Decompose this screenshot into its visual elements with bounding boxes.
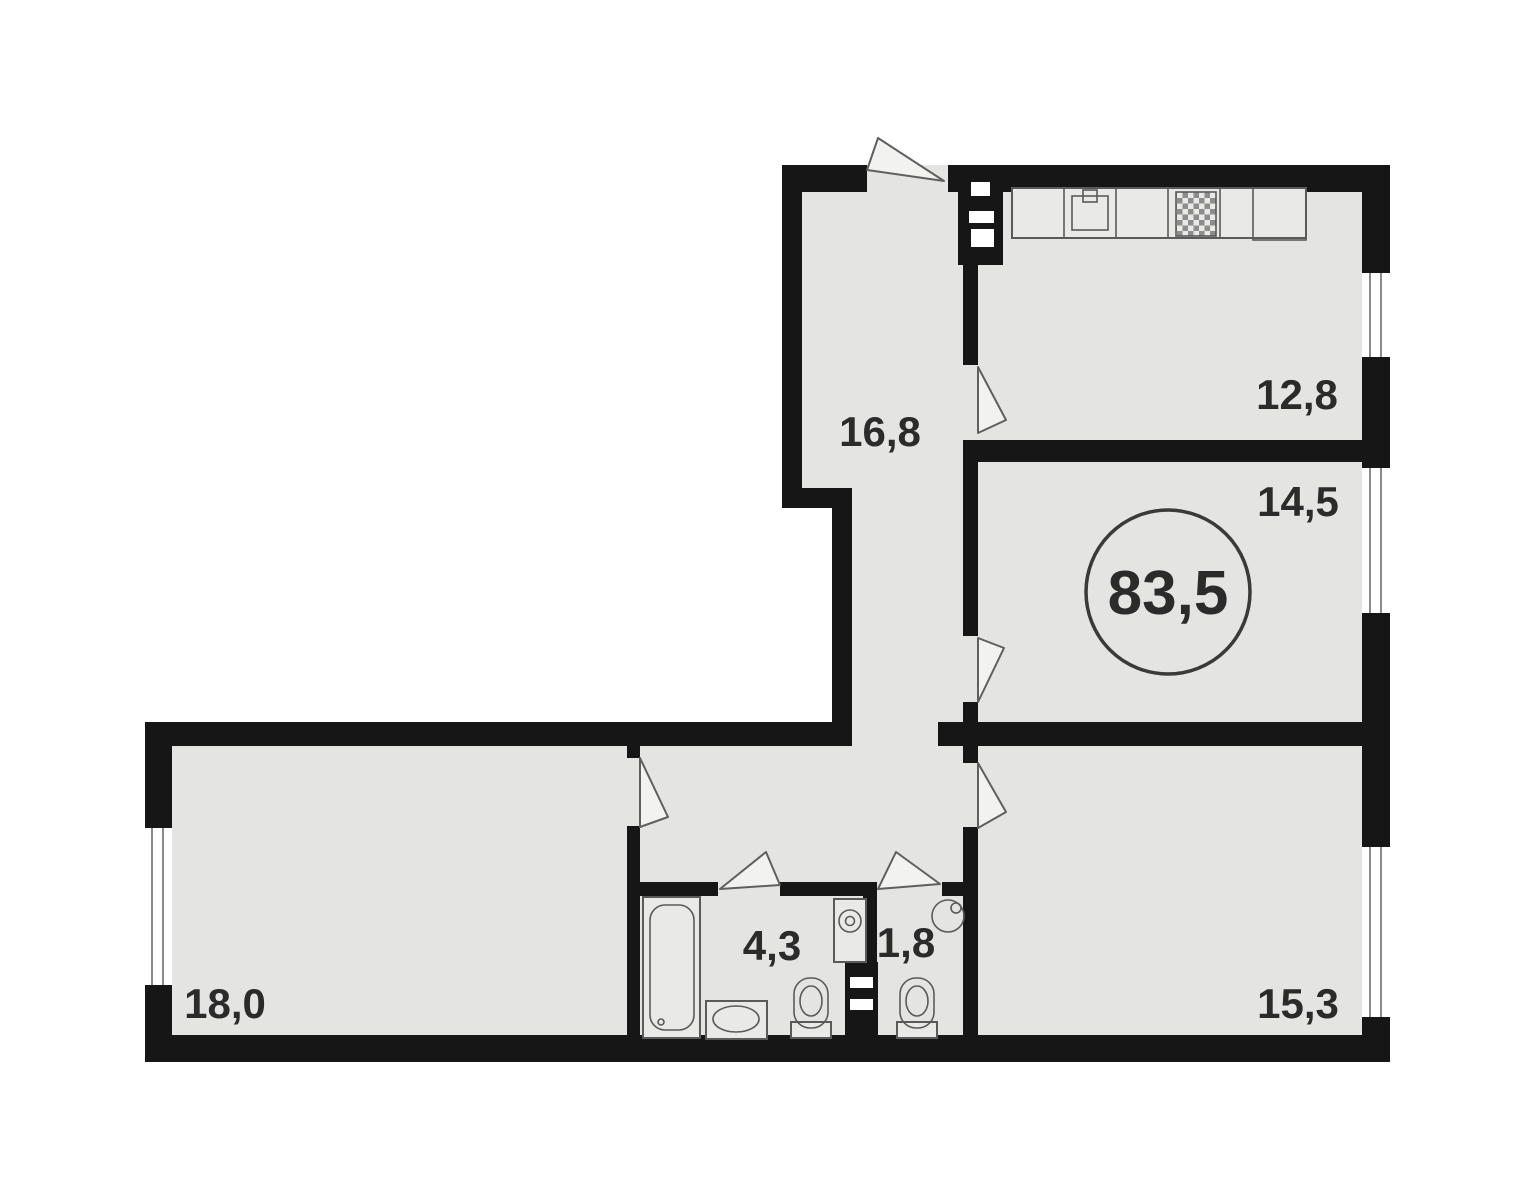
hallway-area-label: 16,8: [839, 408, 921, 455]
wall-segment: [942, 882, 963, 896]
wall-segment: [145, 722, 852, 746]
wall-segment: [627, 826, 640, 1035]
vent-shaft-entrance: [958, 175, 1003, 265]
kitchen-area-label: 12,8: [1256, 371, 1338, 418]
vent-shaft-bathroom: [845, 962, 878, 1035]
room-top-right-area-label: 14,5: [1257, 478, 1339, 525]
kitchen-counter: [1012, 188, 1306, 240]
window-room-bottom-left: [145, 828, 172, 985]
bathtub: [643, 897, 700, 1038]
stove: [1176, 192, 1216, 236]
wall-segment: [963, 462, 978, 636]
apartment-floorplan: 83,5 16,8 12,8 14,5 18,0 4,3 1,8 15,3: [0, 0, 1521, 1200]
floorplan-page: 83,5 16,8 12,8 14,5 18,0 4,3 1,8 15,3: [0, 0, 1521, 1200]
wall-segment: [963, 827, 978, 1035]
room-bottom-left-area-label: 18,0: [184, 980, 266, 1027]
wall-segment: [963, 746, 978, 763]
wall-segment: [1362, 357, 1390, 468]
wall-segment: [1362, 165, 1390, 273]
wall-segment: [963, 702, 978, 722]
bathroom-area-label: 4,3: [743, 922, 801, 969]
window-room-bottom-right: [1362, 847, 1390, 1017]
window-kitchen: [1362, 273, 1390, 357]
wc-area-label: 1,8: [877, 919, 935, 966]
washbasin: [706, 1001, 767, 1039]
wall-segment: [780, 882, 877, 896]
wall-segment: [640, 882, 718, 896]
wall-segment: [963, 440, 1362, 462]
wall-segment: [627, 746, 640, 758]
wall-segment: [938, 722, 1390, 746]
room-bottom-right-area-label: 15,3: [1257, 980, 1339, 1027]
wall-segment: [782, 165, 802, 508]
wall-segment: [145, 722, 172, 828]
window-room-top-right: [1362, 468, 1390, 613]
washing-machine: [834, 899, 866, 962]
wall-segment: [963, 265, 978, 365]
wall-segment: [832, 500, 852, 746]
total-area-label: 83,5: [1108, 559, 1229, 628]
